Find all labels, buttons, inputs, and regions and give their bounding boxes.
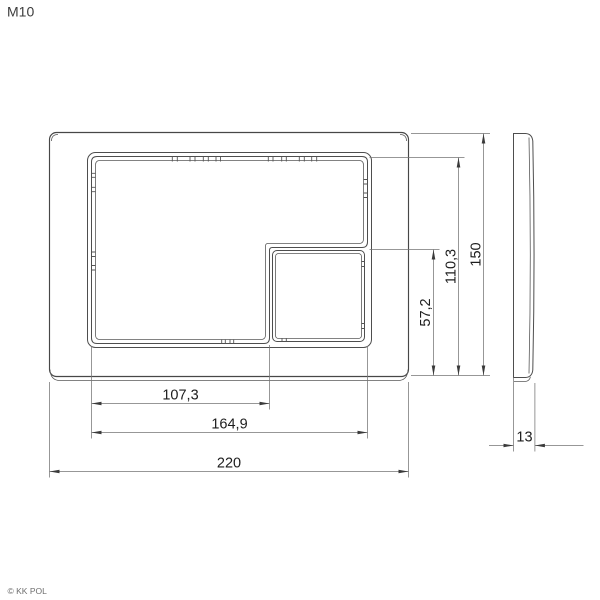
front-view (50, 133, 409, 381)
arrowhead-top (432, 250, 436, 260)
dimension-total-height: 150 (469, 134, 486, 376)
extension-lines (50, 134, 535, 478)
drawing-title: M10 (7, 4, 34, 20)
copyright-notice: © KK POL (8, 586, 48, 596)
dim-label-small-button-height: 57,2 (418, 298, 434, 326)
clip-ticks-right-big-button (364, 180, 368, 198)
arrowhead-left (92, 402, 102, 406)
dimension-small-button-height: 57,2 (418, 250, 435, 376)
dim-label-big-button-width: 107,3 (162, 388, 198, 404)
small-button-inner-edge (276, 254, 362, 339)
drawing-canvas: 107,3 164,9 220 57,2 110,3 150 13 M (0, 0, 600, 600)
arrowhead-top (482, 134, 486, 144)
arrowhead-right (399, 470, 409, 474)
dim-label-total-height: 150 (469, 242, 485, 266)
side-view (514, 134, 535, 382)
side-profile-outline (514, 134, 535, 378)
arrowhead-right (358, 431, 368, 435)
arrowhead-bottom (482, 366, 486, 376)
dim-label-buttons-width: 164,9 (211, 417, 247, 433)
clip-ticks-left (92, 173, 96, 270)
arrowhead-right (260, 402, 270, 406)
plate-corner-accents (52, 135, 407, 142)
arrowhead-right (535, 444, 545, 448)
arrowhead-bottom (432, 366, 436, 376)
arrowhead-top (457, 158, 461, 168)
technical-drawing: 107,3 164,9 220 57,2 110,3 150 13 M (0, 0, 600, 600)
small-button-outline (273, 251, 365, 342)
arrowhead-left (50, 470, 60, 474)
side-front-face-line (529, 138, 530, 374)
dimension-total-width: 220 (50, 456, 409, 474)
dimension-thickness: 13 (489, 430, 584, 448)
clip-ticks-bottom (222, 338, 287, 344)
arrowhead-bottom (457, 366, 461, 376)
arrowhead-left (92, 431, 102, 435)
dim-label-total-width: 220 (217, 456, 241, 472)
dimension-buttons-height: 110,3 (444, 158, 461, 376)
arrowhead-left (504, 444, 514, 448)
dimension-buttons-width: 164,9 (92, 417, 368, 435)
dim-label-buttons-height: 110,3 (444, 249, 460, 284)
plate-bottom-edge-line (50, 370, 408, 381)
dimension-big-button-width: 107,3 (92, 388, 270, 406)
dim-label-thickness: 13 (516, 430, 532, 446)
